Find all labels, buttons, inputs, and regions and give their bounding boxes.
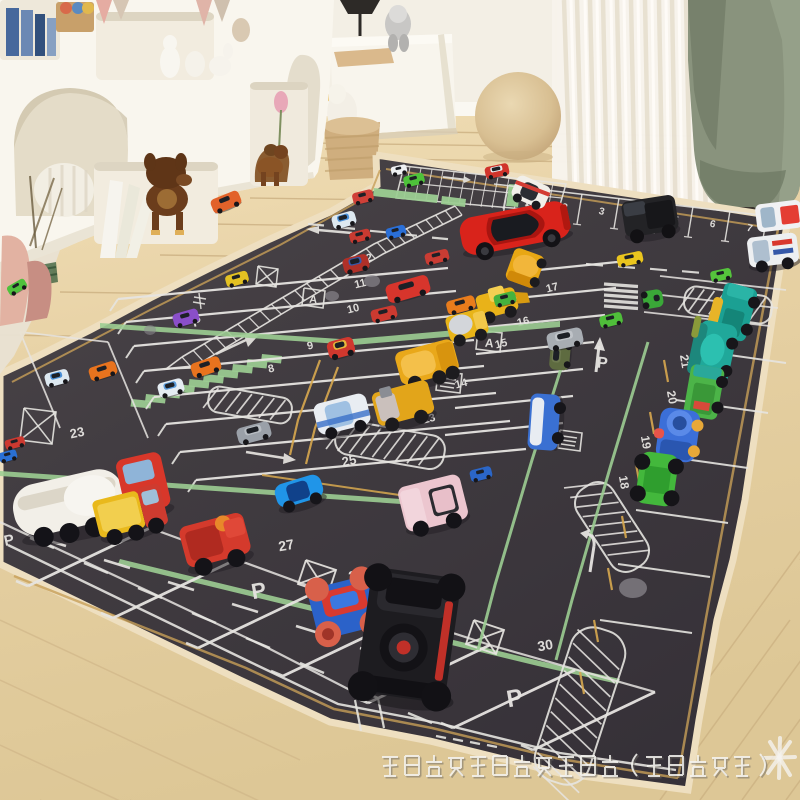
svg-text:23: 23 [68, 424, 85, 442]
svg-text:20: 20 [664, 390, 680, 406]
svg-text:19: 19 [638, 435, 654, 451]
svg-text:27: 27 [277, 536, 295, 554]
svg-text:30: 30 [536, 636, 554, 654]
svg-text:18: 18 [616, 475, 632, 491]
svg-text:P: P [596, 355, 608, 373]
